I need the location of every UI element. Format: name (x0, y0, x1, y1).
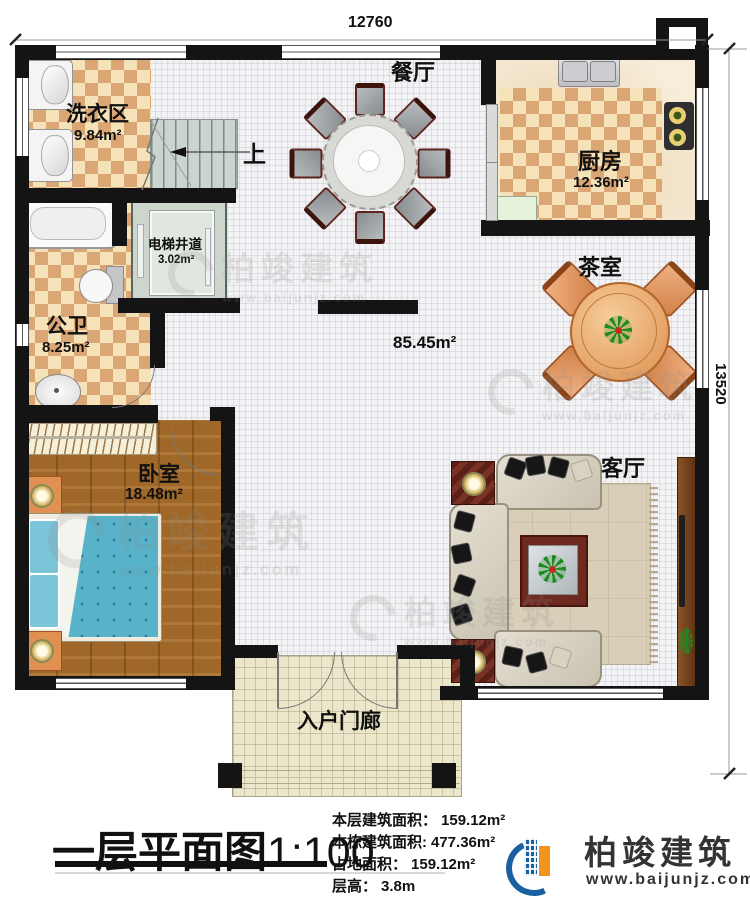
brand-name: 柏竣建筑 (584, 836, 736, 871)
stat-label: 层高： (332, 878, 377, 895)
wall-below-elevator (118, 298, 240, 313)
porch-step-line (232, 783, 460, 784)
room-label-bedroom: 卧室 (138, 464, 180, 486)
window (478, 688, 663, 699)
washer-drum-icon (41, 135, 69, 177)
bathtub-basin (30, 207, 106, 240)
room-area-bath: 8.25m² (42, 340, 90, 356)
sofa-pillow (501, 645, 524, 668)
bed-pillow (28, 573, 60, 629)
wall-porch-west-stub (233, 645, 278, 658)
wall-hall-stub (318, 300, 418, 314)
wall-bath-south (15, 405, 158, 423)
stat-row: 占地面积：159.12m² (332, 854, 505, 876)
room-label-bath: 公卫 (46, 316, 88, 338)
burner-icon (669, 107, 686, 124)
room-area-bedroom: 18.48m² (125, 487, 183, 503)
hall-area-label: 85.45m² (393, 334, 456, 352)
tv-icon (679, 515, 685, 607)
stat-value: 477.36m² (431, 834, 495, 851)
porch-column (432, 763, 456, 788)
wall-porch-east (460, 645, 475, 700)
window (16, 78, 29, 156)
kitchen-sliding-door (486, 162, 498, 221)
stat-row: 本层建筑面积：159.12m² (332, 810, 505, 832)
brand-logo-building-icon (524, 838, 537, 876)
bed-pillow (28, 519, 60, 575)
wall-kitchen-south (481, 220, 710, 236)
stairs-up-label: 上 (243, 142, 266, 166)
elevator-rail (137, 224, 144, 278)
staircase (150, 119, 238, 189)
plant-icon (538, 555, 566, 583)
dining-chair (290, 149, 323, 179)
window (696, 290, 709, 388)
stat-value: 159.12m² (441, 812, 505, 829)
stat-row: 层高：3.8m (332, 876, 505, 898)
drawing-title: 一层平面图1:100 (52, 818, 375, 880)
stat-label: 本栋建筑面积: (332, 834, 427, 851)
plant-icon (604, 316, 632, 344)
sofa-pillow (450, 542, 473, 565)
elevator-rail (205, 228, 211, 286)
door-leaf (396, 652, 398, 708)
wall-tub-divider (112, 202, 127, 246)
wall-laundry-south (15, 188, 236, 203)
brand-url: www.baijunjz.com (586, 872, 750, 889)
floor-plan-page: 洗衣区 9.84m² 餐厅 厨房 12.36m² 茶室 电梯井道 3.02m² … (0, 0, 750, 901)
toilet-bowl (79, 269, 113, 303)
brand-logo-building-icon (539, 846, 550, 876)
wardrobe-rail (28, 436, 151, 439)
brand-logo (506, 836, 570, 892)
room-area-elevator: 3.02m² (158, 254, 194, 266)
room-label-elevator: 电梯井道 (148, 238, 202, 252)
door-leaf (277, 652, 279, 708)
room-label-laundry: 洗衣区 (66, 104, 129, 126)
wall-bath-east (150, 313, 165, 368)
dining-chair (355, 211, 385, 244)
burner-icon (669, 129, 686, 146)
wardrobe (24, 423, 157, 455)
washer-drum-icon (41, 65, 69, 104)
stat-value: 3.8m (381, 878, 415, 895)
sink-basin (590, 61, 616, 82)
room-label-porch: 入户门廊 (297, 711, 381, 733)
room-label-dining: 餐厅 (391, 61, 435, 84)
sofa-pillow (524, 454, 546, 476)
chimney-flue (669, 27, 696, 49)
rug-fringe (649, 483, 658, 663)
stat-label: 占地面积： (332, 856, 407, 873)
stat-value: 159.12m² (411, 856, 475, 873)
sink-drain-icon (54, 388, 59, 393)
window (56, 678, 186, 689)
lamp-icon (30, 639, 54, 663)
room-label-living: 客厅 (601, 457, 645, 480)
dining-chair (355, 83, 385, 116)
porch-column (218, 763, 242, 788)
kitchen-sliding-door (486, 104, 498, 163)
floor-stats: 本层建筑面积：159.12m² 本栋建筑面积:477.36m² 占地面积：159… (332, 810, 505, 898)
lamp-icon (30, 484, 54, 508)
room-label-kitchen: 厨房 (578, 150, 622, 173)
window (282, 45, 440, 59)
sink-basin (562, 61, 588, 82)
title-underline (55, 861, 327, 867)
dining-table-center (358, 150, 380, 172)
lamp-icon (462, 472, 486, 496)
room-label-tea: 茶室 (578, 256, 622, 279)
window (56, 45, 186, 59)
room-area-laundry: 9.84m² (74, 128, 122, 144)
drawing-title-text: 一层平面图 (52, 829, 267, 877)
stat-row: 本栋建筑面积:477.36m² (332, 832, 505, 854)
window (696, 88, 709, 200)
dining-chair (418, 149, 451, 179)
dimension-top: 12760 (348, 15, 393, 32)
window (16, 324, 29, 346)
dimension-right: 13520 (712, 352, 728, 416)
porch-step-line (232, 770, 460, 771)
stat-label: 本层建筑面积： (332, 812, 437, 829)
washing-machine (26, 129, 73, 182)
plant-icon (679, 628, 693, 654)
wall-kitchen-west (481, 53, 496, 105)
room-area-kitchen: 12.36m² (573, 175, 629, 191)
